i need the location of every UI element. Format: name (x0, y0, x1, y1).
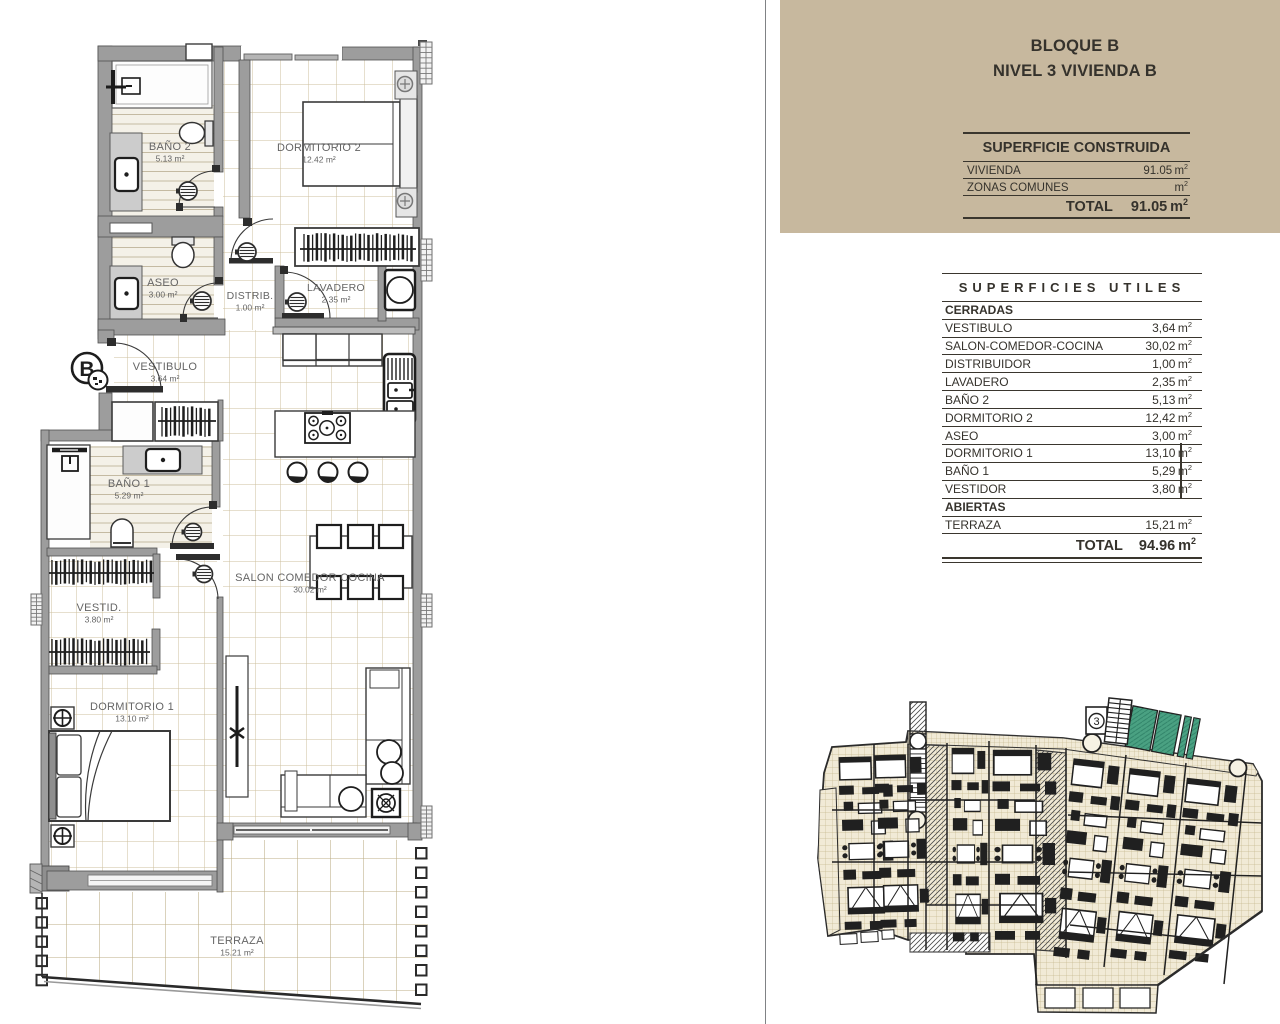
svg-text:DORMITORIO 2: DORMITORIO 2 (277, 142, 361, 154)
svg-text:1.00 m²: 1.00 m² (236, 303, 265, 313)
svg-text:DORMITORIO 1: DORMITORIO 1 (90, 701, 174, 713)
svg-text:13.10 m²: 13.10 m² (115, 714, 149, 724)
svg-text:30.02 m²: 30.02 m² (293, 585, 327, 595)
svg-text:TERRAZA: TERRAZA (210, 935, 264, 947)
svg-text:SALON COMEDOR COCINA: SALON COMEDOR COCINA (235, 572, 385, 584)
svg-text:BAÑO 2: BAÑO 2 (149, 140, 191, 153)
svg-text:ASEO: ASEO (147, 277, 179, 289)
svg-text:3.64 m²: 3.64 m² (151, 374, 180, 384)
svg-text:BAÑO 1: BAÑO 1 (108, 477, 150, 490)
svg-text:15.21 m²: 15.21 m² (220, 948, 254, 958)
svg-text:VESTIBULO: VESTIBULO (133, 361, 198, 373)
svg-text:5.29 m²: 5.29 m² (115, 491, 144, 501)
svg-text:5.13 m²: 5.13 m² (156, 154, 185, 164)
svg-text:3: 3 (1093, 716, 1099, 728)
svg-text:DISTRIB.: DISTRIB. (227, 290, 274, 302)
svg-text:2.35 m²: 2.35 m² (322, 295, 351, 305)
svg-text:3.00 m²: 3.00 m² (149, 290, 178, 300)
svg-text:12.42 m²: 12.42 m² (302, 155, 336, 165)
svg-text:VESTID.: VESTID. (77, 602, 122, 614)
svg-text:LAVADERO: LAVADERO (307, 282, 365, 294)
svg-text:3.80 m²: 3.80 m² (85, 615, 114, 625)
